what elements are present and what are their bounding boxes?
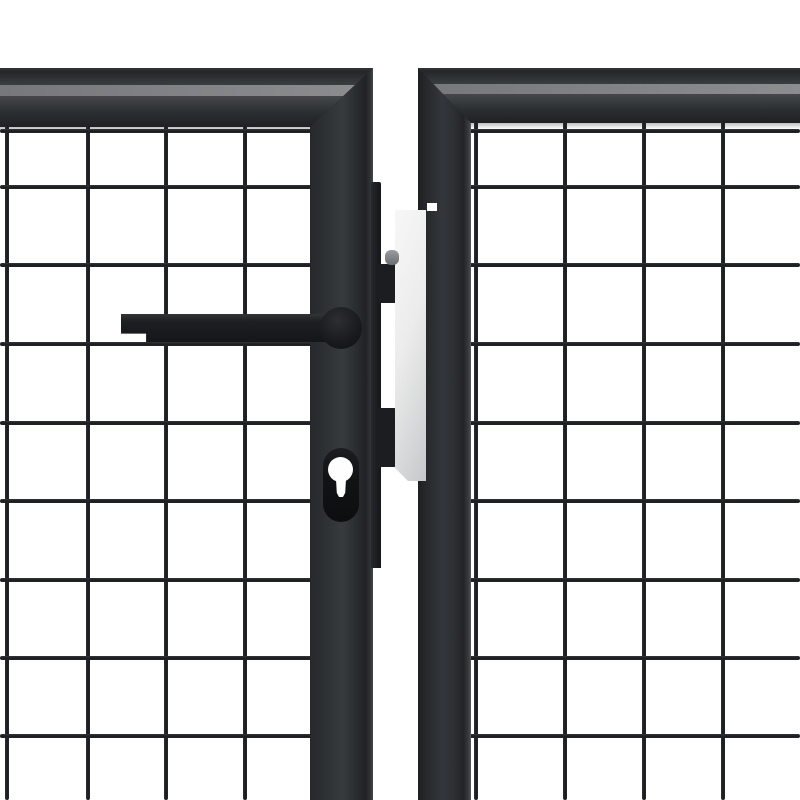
- left-rail-bevel-highlight: [0, 85, 373, 96]
- mesh-wire-horizontal: [0, 421, 314, 426]
- mesh-wire-vertical: [563, 121, 568, 800]
- left-rail-top-edge: [0, 68, 373, 85]
- latch-keeper-lower: [376, 408, 396, 467]
- mesh-wire-horizontal: [0, 734, 314, 739]
- garden-gate-product-photo: [0, 0, 800, 800]
- mesh-wire-horizontal: [467, 578, 800, 583]
- mesh-wire-horizontal: [467, 185, 800, 190]
- mesh-wire-horizontal: [467, 734, 800, 739]
- mesh-wire-vertical: [86, 125, 91, 800]
- mesh-wire-horizontal: [467, 342, 800, 347]
- mesh-wire-horizontal: [0, 185, 314, 190]
- right-stile-rebate-notch: [427, 203, 437, 211]
- handle-hub-rosette: [320, 307, 362, 349]
- mesh-wire-horizontal: [0, 499, 314, 504]
- mesh-wire-horizontal: [467, 263, 800, 268]
- spring-latch-bolt: [385, 250, 399, 265]
- mesh-wire-vertical: [642, 121, 647, 800]
- mesh-wire-horizontal: [467, 656, 800, 661]
- lever-handle: [121, 314, 345, 342]
- mesh-wire-horizontal: [0, 263, 314, 268]
- mesh-wire-horizontal: [0, 342, 314, 347]
- mesh-wire-horizontal: [467, 499, 800, 504]
- mesh-wire-vertical: [5, 125, 10, 800]
- strike-plate: [395, 210, 426, 481]
- mesh-wire-horizontal: [467, 421, 800, 426]
- left-hinge-stile: [310, 68, 373, 800]
- right-rail-top-edge: [418, 68, 800, 84]
- mesh-wire-vertical: [474, 121, 479, 800]
- left-top-rail: [0, 68, 373, 127]
- right-rail-front-face: [418, 94, 800, 123]
- right-rail-bevel-highlight: [418, 84, 800, 94]
- latch-keeper-upper: [376, 264, 398, 303]
- mesh-wire-vertical: [164, 125, 169, 800]
- mesh-wire-horizontal: [467, 129, 800, 134]
- mesh-wire-horizontal: [0, 129, 314, 134]
- mesh-wire-horizontal: [0, 578, 314, 583]
- mesh-wire-vertical: [721, 121, 726, 800]
- right-top-rail: [418, 68, 800, 123]
- mesh-wire-vertical: [243, 125, 248, 800]
- latch-mechanism-bar: [371, 182, 381, 568]
- mesh-wire-horizontal: [0, 656, 314, 661]
